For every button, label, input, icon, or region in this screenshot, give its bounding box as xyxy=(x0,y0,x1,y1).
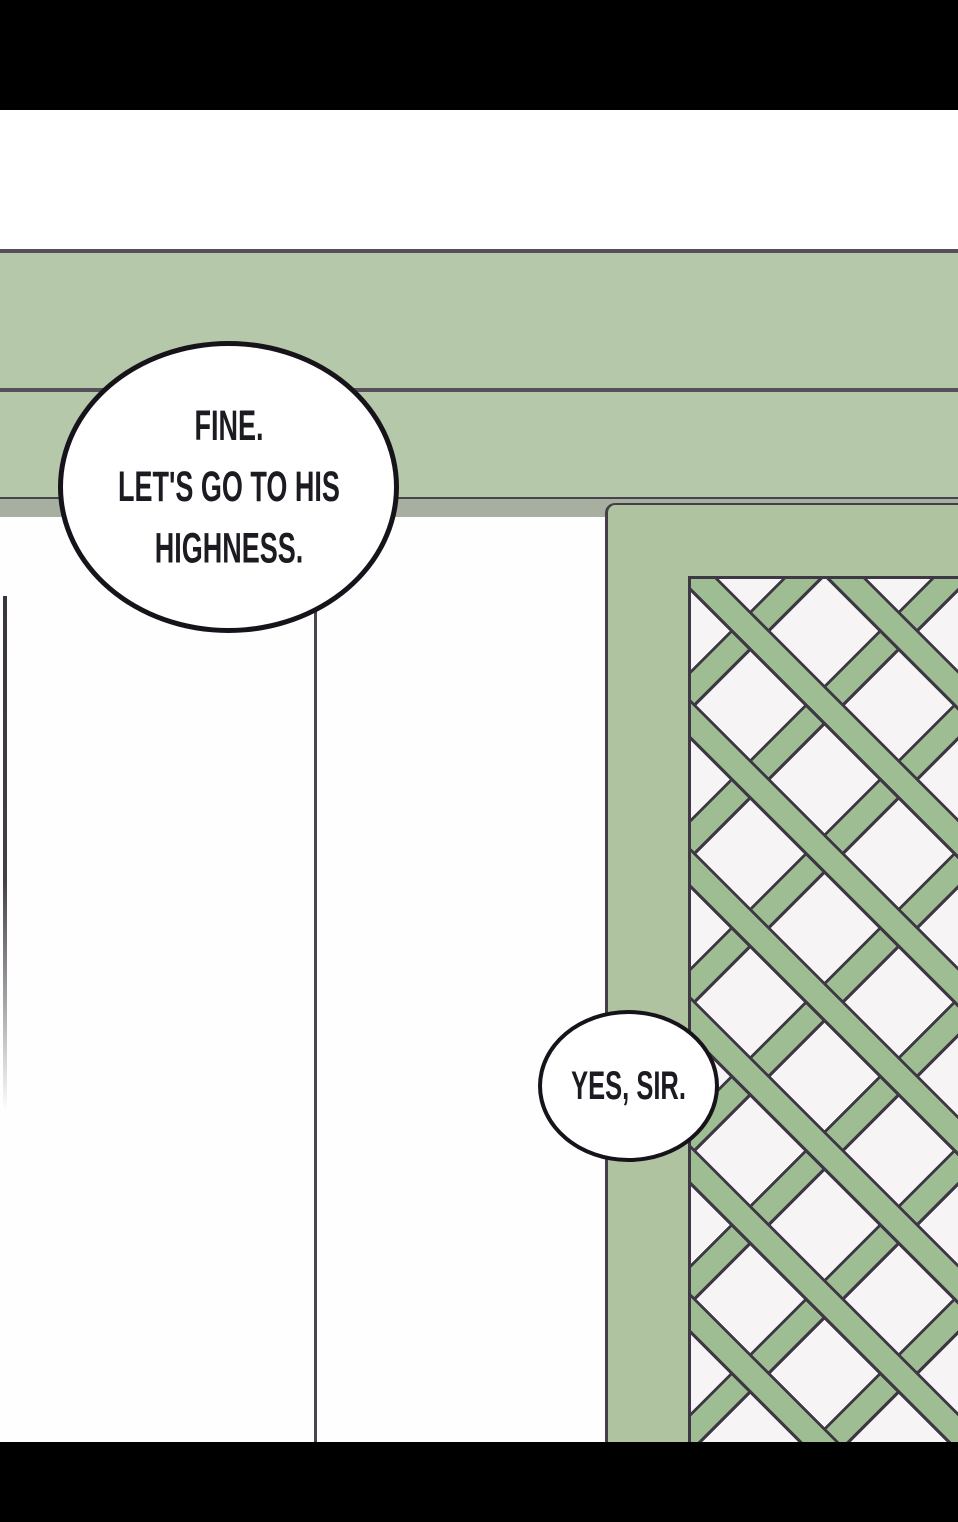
speech-bubble-1: FINE. LET'S GO TO HIS HIGHNESS. xyxy=(58,341,399,633)
door-left-edge-line xyxy=(3,596,7,1111)
door-frame-pillar xyxy=(605,503,958,1442)
beam-top-line xyxy=(0,249,958,253)
speech-bubble-1-text: FINE. LET'S GO TO HIS HIGHNESS. xyxy=(118,395,340,579)
speech-line: LET'S GO TO HIS xyxy=(118,456,340,517)
speech-line: YES, SIR. xyxy=(571,1062,686,1109)
speech-line: FINE. xyxy=(118,395,340,456)
comic-panel: FINE. LET'S GO TO HIS HIGHNESS. YES, SIR… xyxy=(0,0,958,1522)
lattice-door-panel xyxy=(688,576,958,1442)
speech-bubble-2: YES, SIR. xyxy=(538,1010,719,1162)
door-divider-line xyxy=(314,517,317,1442)
top-letterbox-bar xyxy=(0,0,958,110)
speech-bubble-2-text: YES, SIR. xyxy=(571,1062,686,1109)
bottom-letterbox-bar xyxy=(0,1442,958,1522)
speech-line: HIGHNESS. xyxy=(118,518,340,579)
left-door-panel xyxy=(0,517,605,1442)
